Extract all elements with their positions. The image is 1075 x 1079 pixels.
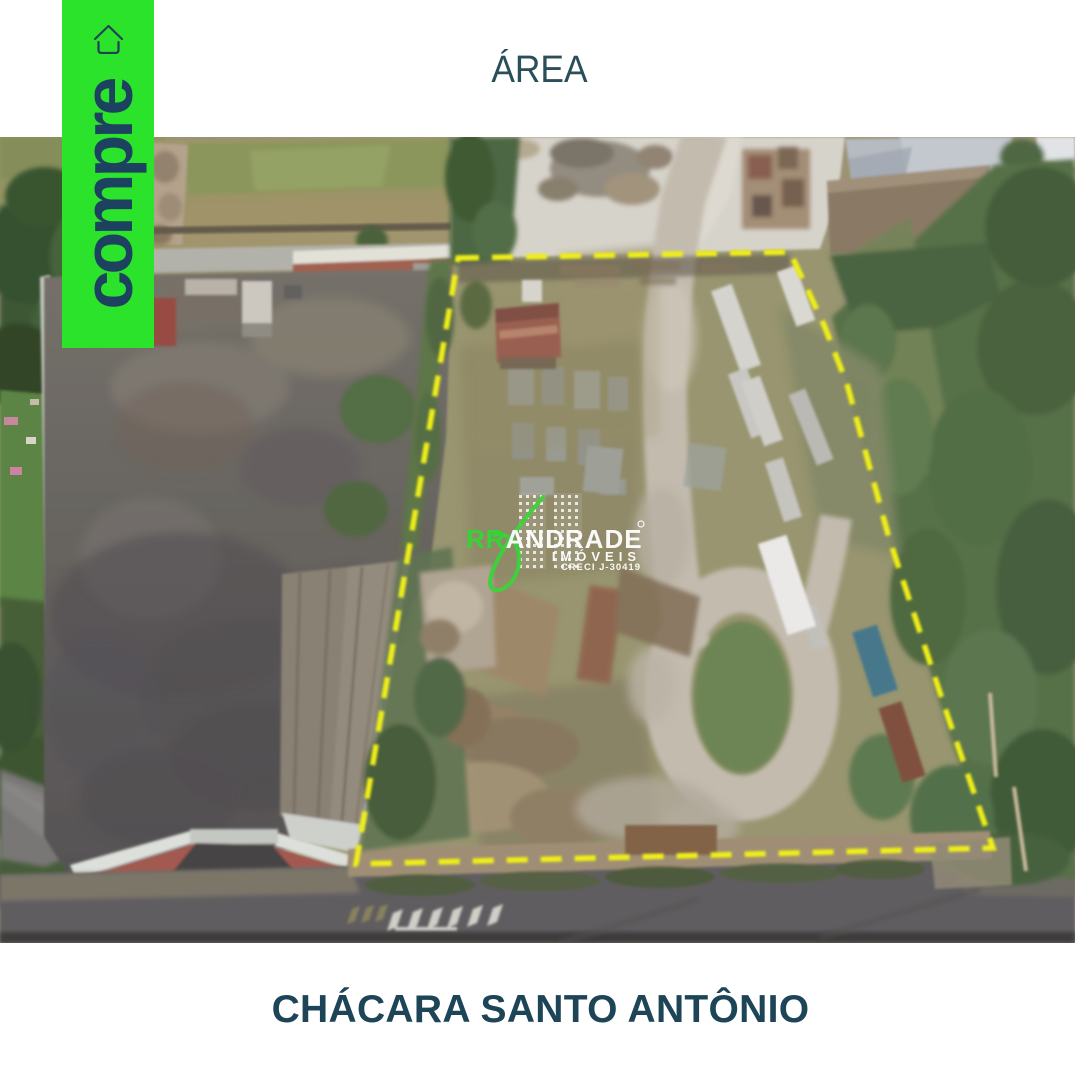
svg-text:CRECI J-30419: CRECI J-30419 [561, 562, 641, 573]
